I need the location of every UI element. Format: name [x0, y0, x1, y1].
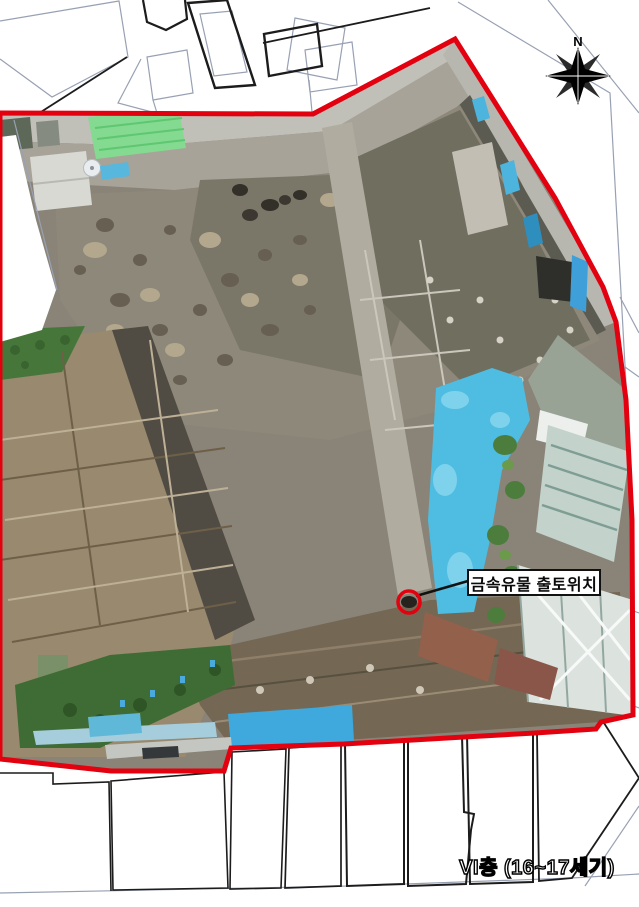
compass-rose-icon: N	[545, 34, 611, 105]
site-orthophoto-map: N	[0, 0, 639, 907]
layer-caption: VI층 (16~17세기)	[452, 851, 622, 879]
compass-north-label: N	[573, 34, 582, 49]
report-figure: N 금속유물 출토위치 VI층 (16~17세기)	[0, 0, 639, 907]
aerial-photo	[0, 30, 639, 770]
artifact-label: 금속유물 출토위치	[467, 569, 601, 596]
